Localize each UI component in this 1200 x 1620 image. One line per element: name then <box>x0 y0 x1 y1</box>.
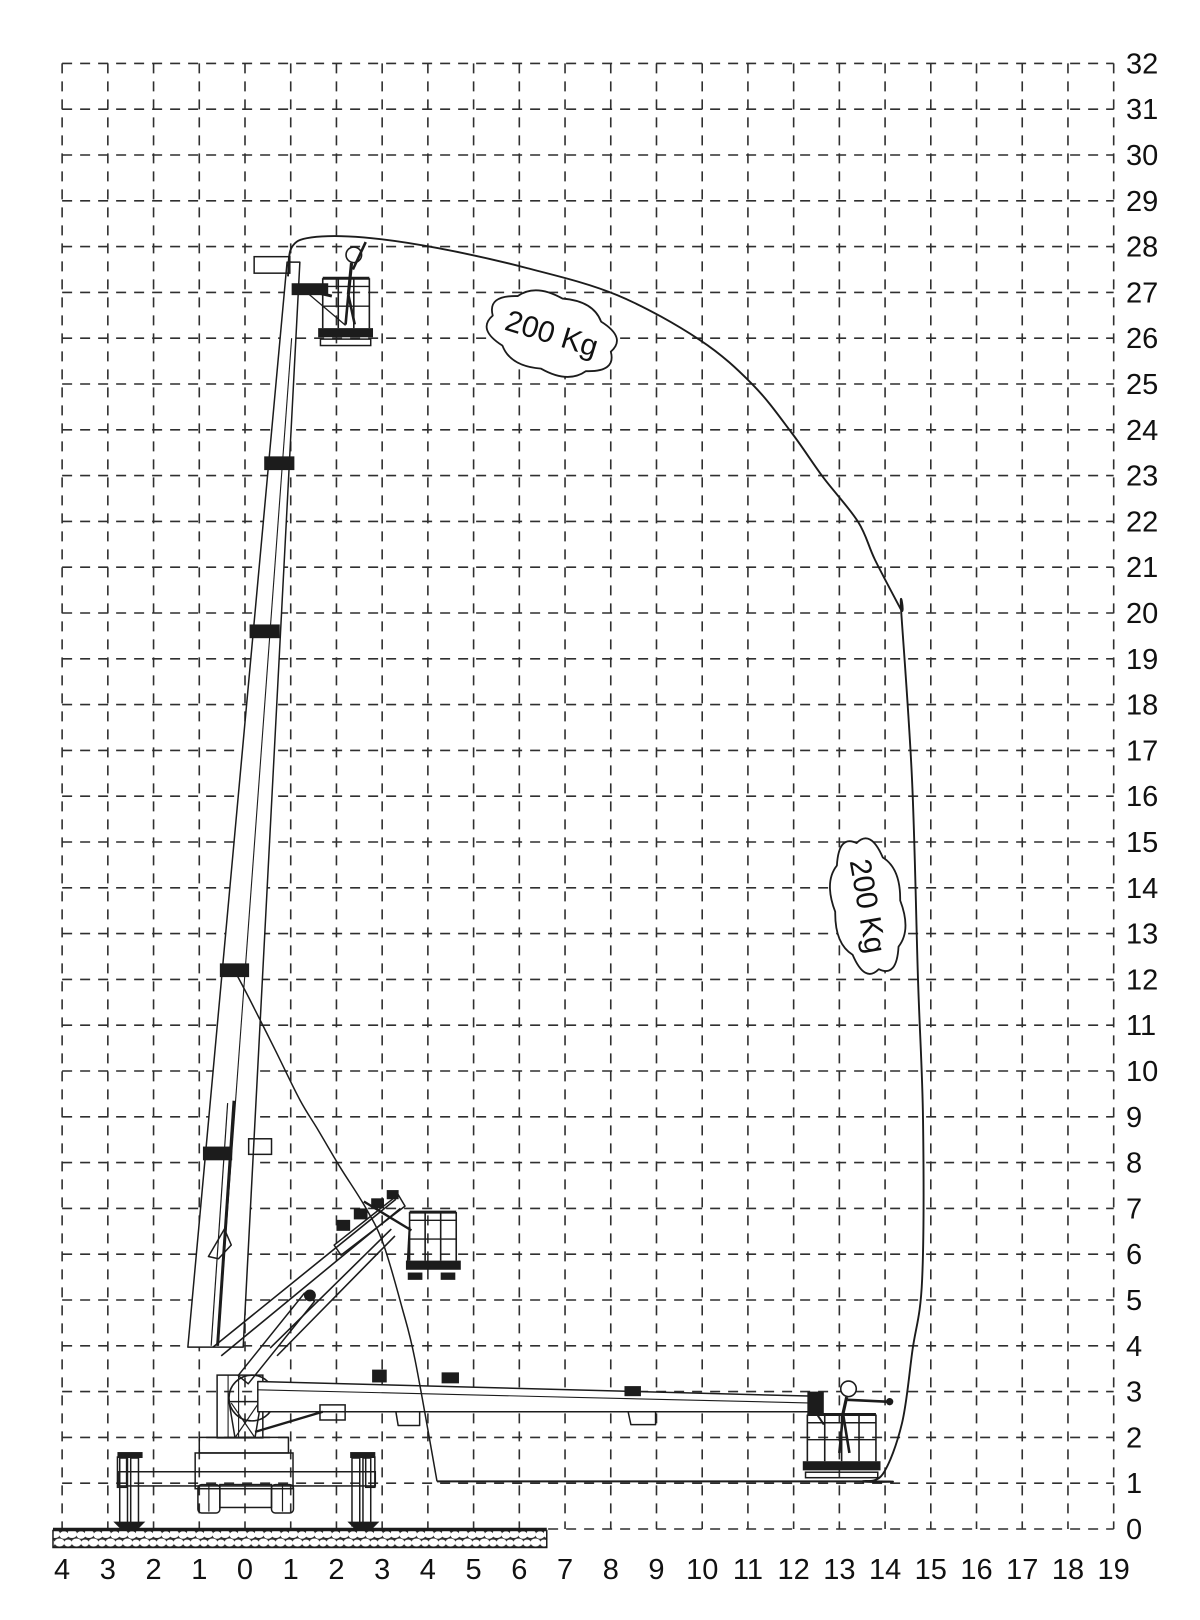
y-tick-label: 11 <box>1126 1010 1156 1042</box>
x-tick-label: 8 <box>603 1554 619 1586</box>
x-tick-label: 0 <box>237 1554 253 1586</box>
y-tick-label: 18 <box>1126 690 1158 722</box>
x-tick-label: 6 <box>511 1554 527 1586</box>
y-tick-label: 7 <box>1126 1193 1142 1225</box>
working-envelope-curve <box>237 236 924 1482</box>
y-tick-label: 19 <box>1126 644 1158 676</box>
y-tick-label: 31 <box>1126 94 1158 126</box>
y-tick-label: 6 <box>1126 1239 1142 1271</box>
y-tick-label: 28 <box>1126 232 1158 264</box>
y-tick-label: 23 <box>1126 461 1158 493</box>
x-tick-label: 9 <box>648 1554 664 1586</box>
y-tick-label: 2 <box>1126 1422 1142 1454</box>
y-tick-label: 13 <box>1126 919 1158 951</box>
load-capacity-cloud: 200 Kg <box>479 278 626 390</box>
x-tick-label: 5 <box>466 1554 482 1586</box>
axis-tick-labels: 4321012345678910111213141516171819012345… <box>54 48 1158 1586</box>
x-tick-label: 2 <box>328 1554 344 1586</box>
y-tick-label: 30 <box>1126 140 1158 172</box>
y-tick-label: 10 <box>1126 1056 1158 1088</box>
y-tick-label: 27 <box>1126 277 1158 309</box>
x-tick-label: 3 <box>374 1554 390 1586</box>
y-tick-label: 20 <box>1126 598 1158 630</box>
x-tick-label: 16 <box>960 1554 992 1586</box>
y-tick-label: 32 <box>1126 48 1158 80</box>
x-tick-label: 4 <box>54 1554 70 1586</box>
y-tick-label: 4 <box>1126 1331 1142 1363</box>
x-tick-label: 4 <box>420 1554 436 1586</box>
envelope-outer-boundary <box>288 236 924 1482</box>
y-tick-label: 26 <box>1126 323 1158 355</box>
x-tick-label: 10 <box>686 1554 718 1586</box>
y-tick-label: 1 <box>1126 1468 1142 1500</box>
x-tick-label: 1 <box>191 1554 207 1586</box>
ground-hatch <box>53 1529 547 1548</box>
y-tick-label: 22 <box>1126 506 1158 538</box>
x-tick-label: 1 <box>283 1554 299 1586</box>
y-tick-label: 0 <box>1126 1514 1142 1546</box>
x-tick-label: 19 <box>1098 1554 1130 1586</box>
y-tick-label: 16 <box>1126 781 1158 813</box>
x-tick-label: 18 <box>1052 1554 1084 1586</box>
y-tick-label: 21 <box>1126 552 1158 584</box>
x-tick-label: 3 <box>100 1554 116 1586</box>
y-tick-label: 29 <box>1126 186 1158 218</box>
x-tick-label: 17 <box>1006 1554 1038 1586</box>
lift-machine-drawing <box>113 242 893 1528</box>
y-tick-label: 24 <box>1126 415 1158 447</box>
x-tick-label: 12 <box>778 1554 810 1586</box>
y-tick-label: 17 <box>1126 735 1158 767</box>
y-tick-label: 14 <box>1126 873 1158 905</box>
reach-diagram: 200 Kg200 Kg 432101234567891011121314151… <box>0 0 1200 1620</box>
load-capacity-labels: 200 Kg200 Kg <box>479 278 914 979</box>
load-capacity-cloud: 200 Kg <box>822 834 914 978</box>
y-tick-label: 25 <box>1126 369 1158 401</box>
y-tick-label: 9 <box>1126 1102 1142 1134</box>
y-tick-label: 3 <box>1126 1377 1142 1409</box>
y-tick-label: 12 <box>1126 964 1158 996</box>
y-tick-label: 8 <box>1126 1148 1142 1180</box>
y-tick-label: 5 <box>1126 1285 1142 1317</box>
x-tick-label: 11 <box>733 1554 763 1586</box>
diagram-canvas: 200 Kg200 Kg 432101234567891011121314151… <box>0 0 1200 1620</box>
x-tick-label: 14 <box>869 1554 901 1586</box>
y-tick-label: 15 <box>1126 827 1158 859</box>
x-tick-label: 13 <box>823 1554 855 1586</box>
x-tick-label: 15 <box>915 1554 947 1586</box>
x-tick-label: 7 <box>557 1554 573 1586</box>
x-tick-label: 2 <box>145 1554 161 1586</box>
